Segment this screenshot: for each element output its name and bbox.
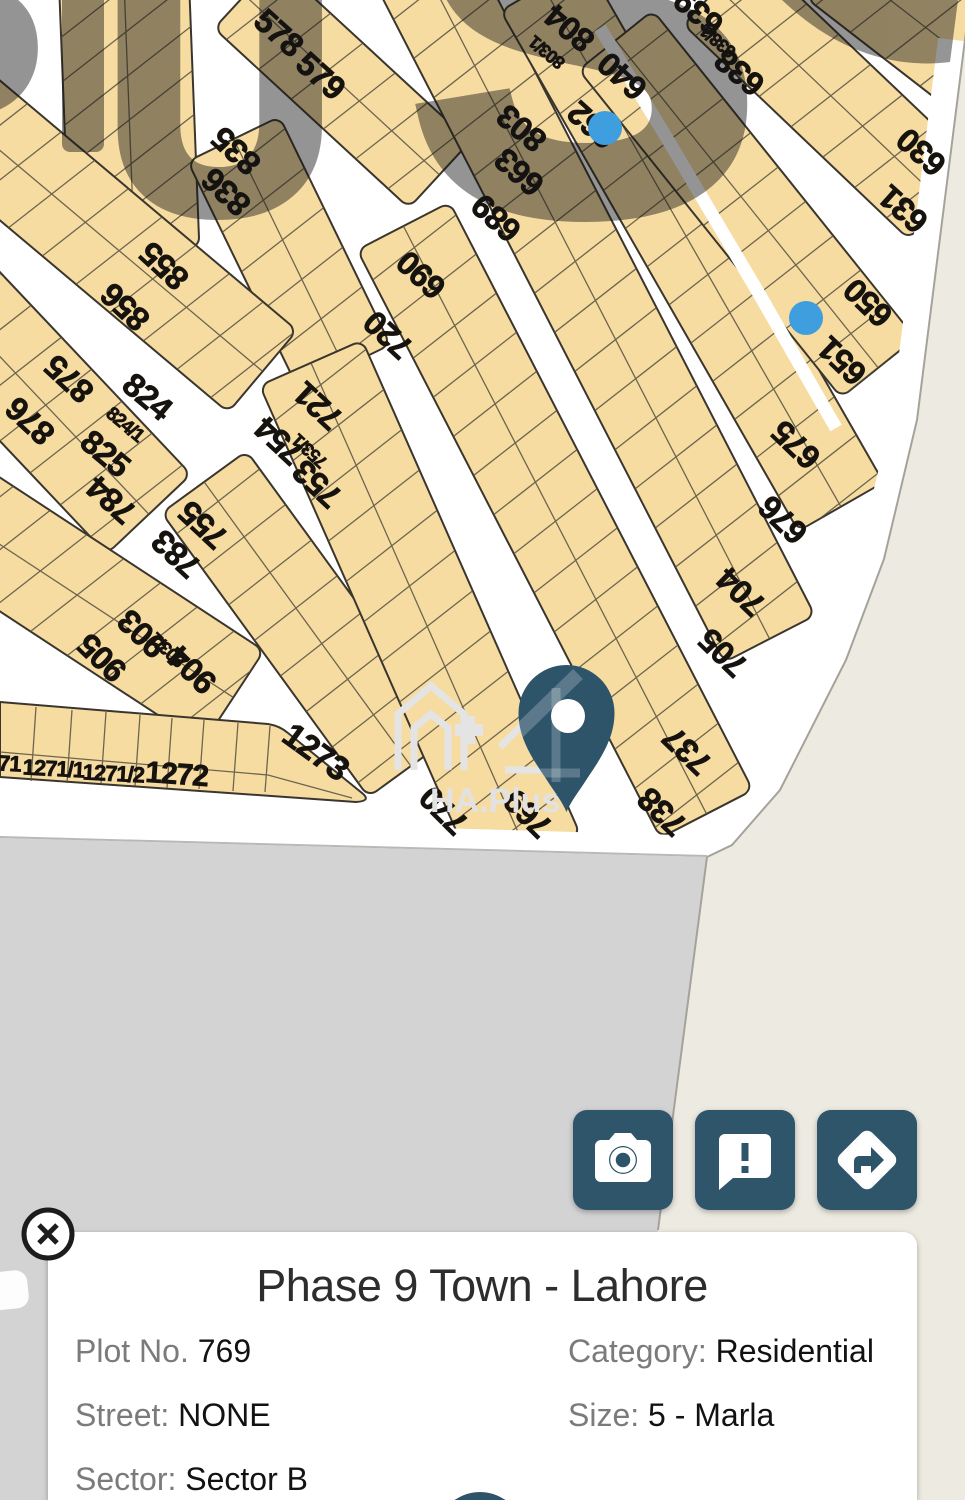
svg-text:HA.Plus: HA.Plus bbox=[430, 782, 560, 820]
svg-text:S: S bbox=[415, 0, 755, 314]
svg-text:1272: 1272 bbox=[144, 756, 209, 793]
svg-text:Plot No. 769: Plot No. 769 bbox=[75, 1333, 251, 1369]
svg-text:1271/2: 1271/2 bbox=[82, 759, 145, 787]
svg-text:71: 71 bbox=[0, 750, 22, 776]
svg-text:1271/1: 1271/1 bbox=[22, 754, 85, 782]
svg-text:U: U bbox=[108, 0, 332, 274]
svg-text:Size: 5 - Marla: Size: 5 - Marla bbox=[568, 1397, 774, 1433]
svg-text:Sector: Sector B: Sector: Sector B bbox=[75, 1461, 308, 1497]
svg-text:Phase 9 Town - Lahore: Phase 9 Town - Lahore bbox=[256, 1260, 707, 1311]
svg-text:Street: NONE: Street: NONE bbox=[75, 1397, 271, 1433]
svg-text:Category: Residential: Category: Residential bbox=[568, 1333, 874, 1369]
svg-text:P: P bbox=[0, 0, 40, 233]
